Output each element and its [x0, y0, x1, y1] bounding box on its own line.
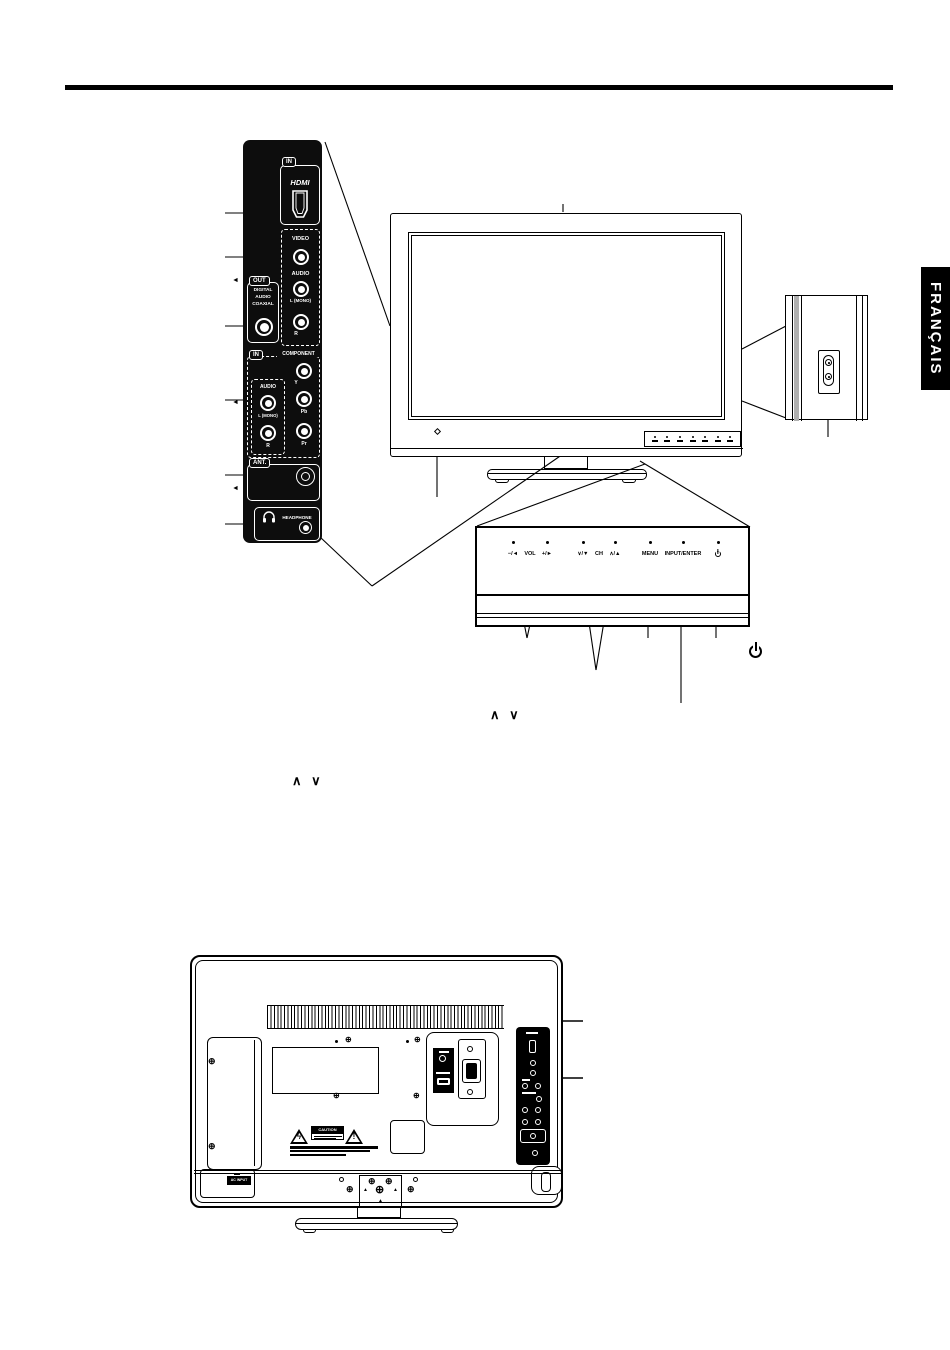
label-text-bar	[290, 1150, 370, 1152]
component-pr-jack	[296, 423, 312, 439]
control-panel-diagram: −/◄ VOL +/► ∨/▼ CH ∧/▲ MENU INPUT/ENTER	[475, 526, 750, 627]
back-label-plate	[272, 1047, 379, 1094]
mini-jack	[522, 1119, 528, 1125]
pin-dot	[828, 362, 830, 364]
mini-jack	[530, 1133, 536, 1139]
r-label: R	[281, 331, 311, 337]
screw-icon: ⊕	[345, 1036, 352, 1044]
mini-jack	[530, 1060, 536, 1066]
cable-holder-slot	[541, 1172, 551, 1192]
edge-line	[801, 296, 802, 421]
tv-screen-inner	[411, 235, 722, 417]
button-dot	[582, 541, 585, 544]
pc-audio-label-dash	[439, 1051, 449, 1053]
power-icon	[715, 551, 721, 557]
mini-button	[715, 436, 721, 442]
y-label: Y	[288, 380, 304, 386]
component-y-jack	[296, 363, 312, 379]
pb-label: Pb	[296, 409, 312, 415]
pr-label: Pr	[296, 441, 312, 447]
ant-tab: ANT.	[249, 458, 270, 468]
caution-text-bar	[314, 1136, 342, 1138]
screw-icon: ⊕	[208, 1057, 216, 1066]
mini-jack	[530, 1070, 536, 1076]
screw-hole	[406, 1040, 409, 1043]
coaxial-out-jack	[255, 318, 273, 336]
triangle-mark: ▲	[378, 1199, 383, 1204]
label-text-bar	[290, 1146, 378, 1149]
ac-input-label: AC INPUT	[227, 1176, 251, 1185]
caution-box: CAUTION	[311, 1126, 344, 1140]
video-label: VIDEO	[281, 236, 320, 242]
screw-icon: ⊕	[346, 1185, 354, 1194]
component-l-mono-label: L (MONO)	[251, 413, 285, 418]
mini-button	[664, 436, 670, 442]
front-control-panel	[644, 431, 741, 447]
strip-label-dash	[526, 1032, 538, 1034]
screw-icon: ⊕	[413, 1092, 420, 1100]
screw-icon: ⊕	[208, 1142, 216, 1151]
stand-foot	[303, 1229, 316, 1233]
screw-icon: ⊕	[414, 1036, 421, 1044]
input-enter-button-label: INPUT/ENTER	[653, 552, 713, 558]
screw-icon: ⊕	[385, 1177, 393, 1186]
antenna-jack-center	[301, 472, 310, 481]
mini-jack	[522, 1107, 528, 1113]
caution-text-bar	[314, 1138, 336, 1139]
audio-right-jack	[293, 314, 309, 330]
manual-page: FRANÇAIS IN HDMI VIDEO AUDIO L (MONO) R …	[0, 0, 950, 1350]
mini-jack	[535, 1083, 541, 1089]
stand-foot	[622, 479, 636, 483]
language-tab: FRANÇAIS	[921, 267, 950, 390]
button-dot	[649, 541, 652, 544]
ch-up-button-label: ∧/▲	[595, 552, 635, 558]
mini-button	[727, 436, 733, 442]
pin-dot	[828, 376, 830, 378]
tv-screen	[408, 232, 725, 420]
vol-up-button-label: +/►	[527, 552, 567, 558]
screw-hole	[339, 1177, 344, 1182]
tv-front-diagram	[390, 213, 742, 457]
back-stand-base	[295, 1218, 458, 1230]
stand-foot	[441, 1229, 454, 1233]
digital-label-1: DIGITAL	[247, 288, 279, 293]
side-connector-panel-diagram: IN HDMI VIDEO AUDIO L (MONO) R OUT DIGIT…	[243, 140, 322, 543]
edge-line	[862, 296, 863, 421]
plate-screw	[467, 1089, 473, 1095]
power-icon	[749, 645, 762, 658]
component-audio-label: AUDIO	[251, 384, 285, 390]
triangle-mark: ▲	[363, 1188, 368, 1193]
out-tab: OUT	[249, 276, 270, 286]
back-stand-neck	[357, 1206, 401, 1218]
channel-arrows-annotation: ∧ ∨	[292, 774, 324, 787]
screw-icon: ⊕	[375, 1185, 384, 1196]
mini-button	[690, 436, 696, 442]
edge-line	[856, 296, 857, 421]
dsub-slot	[466, 1063, 477, 1079]
mini-button	[677, 436, 683, 442]
tv-back-diagram: ⊕ ⊕ ⊕ ⊕ ⊕ ⊕ CAUTION	[190, 955, 563, 1208]
edge-line	[792, 296, 793, 421]
front-bottom-line	[391, 448, 743, 449]
pc-vga-slot	[439, 1080, 448, 1083]
strip-label-dash	[522, 1079, 530, 1081]
component-audio-left-jack	[260, 395, 276, 411]
pc-in-label-dash	[436, 1072, 450, 1074]
headphone-icon	[262, 511, 276, 524]
channel-arrows-annotation: ∧ ∨	[490, 708, 522, 721]
triangle-mark: ▲	[393, 1188, 398, 1193]
screw-icon: ⊕	[333, 1092, 340, 1100]
button-dot	[614, 541, 617, 544]
screw-hole	[335, 1040, 338, 1043]
plate-screw	[467, 1046, 473, 1052]
ac-mark	[234, 1173, 240, 1175]
arrow-left-icon: ◄	[232, 277, 239, 284]
headphone-jack	[299, 521, 312, 534]
mini-button	[652, 436, 658, 442]
mini-hdmi-slot	[529, 1040, 536, 1053]
arrow-left-icon: ◄	[232, 399, 239, 406]
button-dot	[512, 541, 515, 544]
component-label: COMPONENT	[277, 351, 320, 357]
side-edge-detail-diagram	[785, 295, 868, 420]
mini-button	[702, 436, 708, 442]
panel-line	[254, 1040, 255, 1166]
button-dot	[682, 541, 685, 544]
page-top-rule	[65, 85, 893, 90]
language-tab-label: FRANÇAIS	[927, 282, 944, 376]
component-pb-jack	[296, 391, 312, 407]
audio-label: AUDIO	[281, 271, 320, 277]
strip-line	[477, 617, 748, 618]
mini-jack	[535, 1107, 541, 1113]
button-dot	[546, 541, 549, 544]
hdmi-connector-icon	[290, 190, 310, 220]
digital-label-3: COAXIAL	[247, 302, 279, 307]
stand-foot	[495, 479, 509, 483]
power-indicator	[434, 428, 441, 435]
l-mono-label: L (MONO)	[281, 298, 320, 303]
stand-base-line	[488, 473, 646, 474]
hdmi-logo: HDMI	[282, 178, 318, 187]
edge-band	[794, 296, 799, 421]
component-audio-right-jack	[260, 425, 276, 441]
vent-slats	[267, 1005, 504, 1029]
stand-neck	[544, 457, 588, 469]
audio-left-jack	[293, 281, 309, 297]
ac-input-area: AC INPUT	[200, 1169, 255, 1198]
hdmi-in-tab: IN	[282, 157, 296, 167]
mini-jack	[522, 1083, 528, 1089]
mini-jack	[536, 1096, 542, 1102]
screw-icon: ⊕	[407, 1185, 415, 1194]
arrow-left-icon: ◄	[232, 485, 239, 492]
component-in-tab: IN	[249, 350, 263, 360]
strip-label-dash	[522, 1092, 536, 1094]
mini-jack	[535, 1119, 541, 1125]
pc-audio-jack	[439, 1055, 446, 1062]
label-text-bar	[290, 1154, 346, 1156]
back-door-flap	[390, 1120, 425, 1154]
component-r-label: R	[251, 443, 285, 449]
digital-label-2: AUDIO	[247, 295, 279, 300]
video-jack	[293, 249, 309, 265]
strip-divider	[477, 594, 748, 596]
caution-label: CAUTION	[312, 1127, 343, 1134]
mini-jack	[532, 1150, 538, 1156]
button-dot	[717, 541, 720, 544]
strip-line	[477, 613, 748, 614]
stand-base-line	[296, 1223, 457, 1224]
ac-inlet	[818, 350, 840, 394]
dsub-connector	[462, 1059, 481, 1083]
headphone-label: HEADPHONE	[275, 515, 319, 520]
screw-hole	[413, 1177, 418, 1182]
